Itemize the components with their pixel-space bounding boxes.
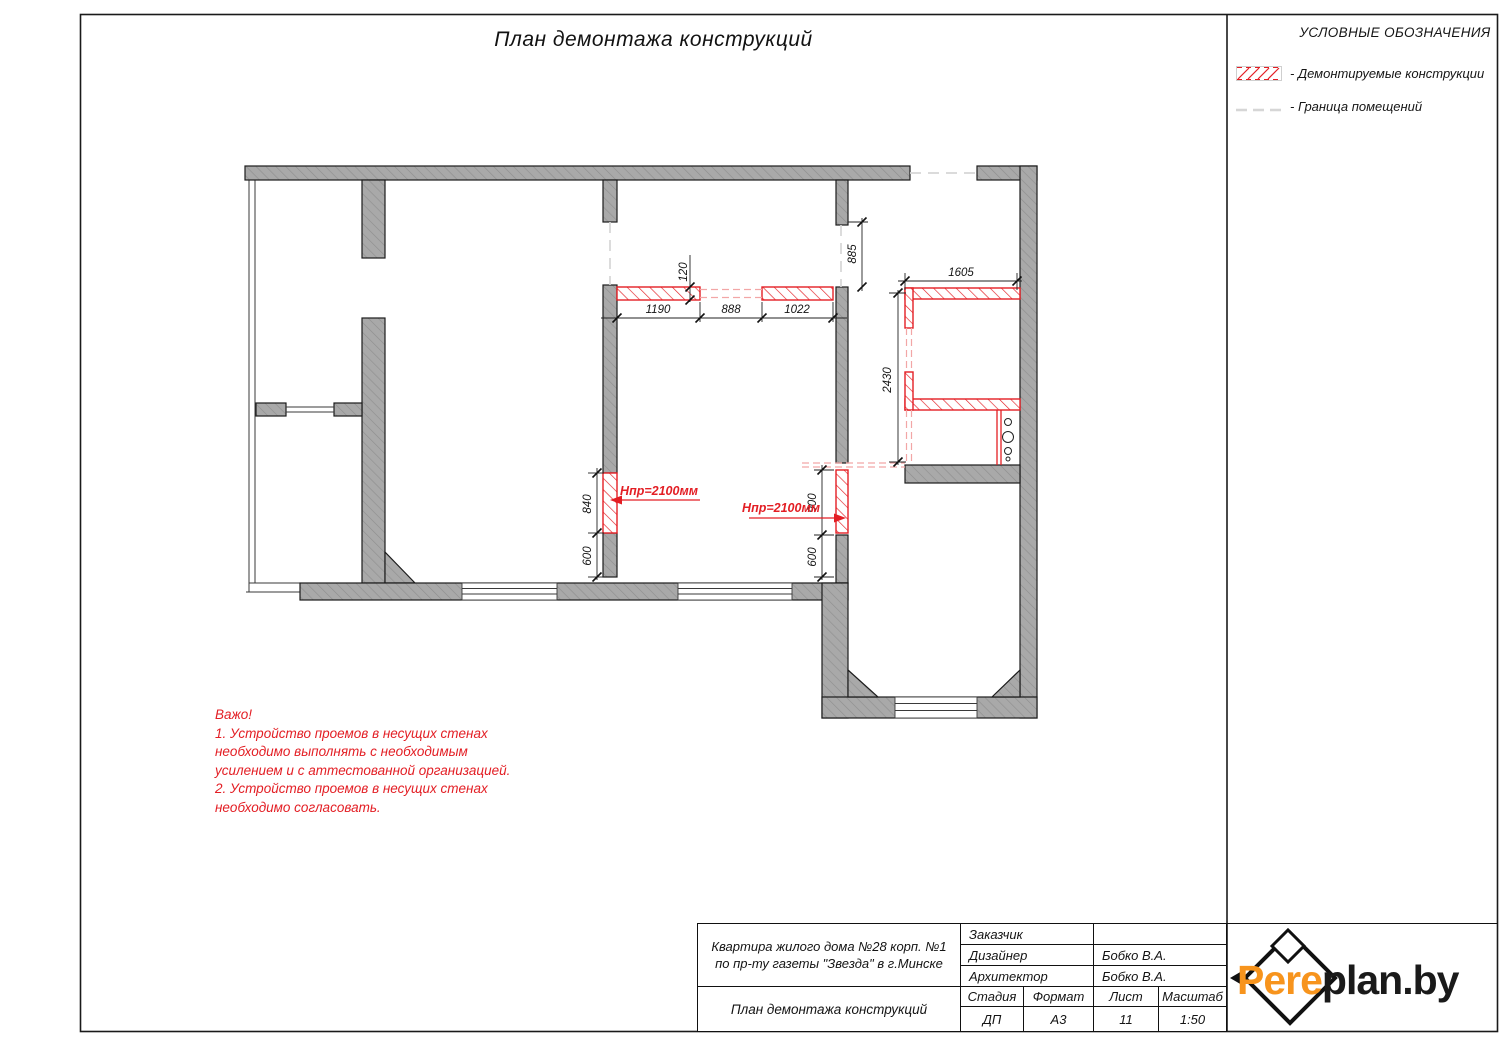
col-label-format: Формат bbox=[1024, 987, 1094, 1007]
legend-boundary-swatch bbox=[1236, 101, 1282, 119]
dim-seg1: 1190 bbox=[646, 304, 671, 316]
title-block: Квартира жилого дома №28 корп. №1 по пр-… bbox=[697, 923, 1227, 1032]
legend-header: УСЛОВНЫЕ ОБОЗНАЧЕНИЯ bbox=[1290, 25, 1500, 40]
opening-note-left: Нпр=2100мм bbox=[620, 484, 698, 498]
page-title: План демонтажа конструкций bbox=[80, 28, 1227, 52]
col-label-stage: Стадия bbox=[961, 987, 1024, 1007]
col-value-sheet: 11 bbox=[1094, 1007, 1159, 1031]
project-line1: Квартира жилого дома №28 корп. №1 bbox=[711, 938, 946, 955]
drawing-sheet: 1190 888 1022 120 885 1605 bbox=[0, 0, 1500, 1061]
note-line: усилением и с аттестованной организацией… bbox=[215, 762, 510, 781]
legend-boundary-label: - Граница помещений bbox=[1290, 99, 1422, 114]
vent-stack bbox=[1003, 419, 1014, 462]
company-logo: Pereplan.by bbox=[1227, 923, 1498, 1032]
pereplan-logo-icon: Pereplan.by bbox=[1227, 924, 1498, 1031]
legend-demolished-swatch bbox=[1236, 66, 1282, 86]
dim-kitchen-width: 1605 bbox=[948, 267, 974, 279]
role-value-designer: Бобко В.А. bbox=[1094, 945, 1226, 966]
note-line: 2. Устройство проемов в несущих стенах bbox=[215, 780, 510, 799]
col-label-scale: Масштаб bbox=[1159, 987, 1226, 1007]
dim-wall-thickness: 120 bbox=[678, 262, 690, 282]
dim-right-offset: 600 bbox=[807, 547, 819, 567]
dim-offset-885: 885 bbox=[847, 244, 859, 264]
logo-part2: plan.by bbox=[1322, 957, 1460, 1003]
dim-seg2: 888 bbox=[721, 304, 741, 316]
dim-seg3: 1022 bbox=[784, 304, 810, 316]
note-line: необходимо согласовать. bbox=[215, 799, 510, 818]
balcony-outline bbox=[246, 166, 362, 592]
note-line: Важо! bbox=[215, 706, 510, 725]
role-label-architect: Архитектор bbox=[961, 966, 1094, 987]
col-value-format: А3 bbox=[1024, 1007, 1094, 1031]
dim-kitchen-height: 2430 bbox=[882, 367, 894, 394]
walls bbox=[245, 166, 1037, 718]
note-line: необходимо выполнять с необходимым bbox=[215, 743, 510, 762]
legend-demolished-label: - Демонтируемые конструкции bbox=[1290, 66, 1484, 81]
col-value-scale: 1:50 bbox=[1159, 1007, 1226, 1031]
role-value-customer bbox=[1094, 924, 1226, 945]
floor-plan-drawing: 1190 888 1022 120 885 1605 bbox=[0, 0, 1500, 1061]
opening-notes: Нпр=2100мм Нпр=2100мм bbox=[610, 484, 846, 523]
project-line2: по пр-ту газеты "Звезда" в г.Минске bbox=[715, 955, 943, 972]
col-value-stage: ДП bbox=[961, 1007, 1024, 1031]
role-label-customer: Заказчик bbox=[961, 924, 1094, 945]
svg-text:Pereplan.by: Pereplan.by bbox=[1237, 957, 1460, 1003]
role-value-architect: Бобко В.А. bbox=[1094, 966, 1226, 987]
project-name-cell: Квартира жилого дома №28 корп. №1 по пр-… bbox=[698, 924, 961, 987]
opening-note-right: Нпр=2100мм bbox=[742, 501, 820, 515]
dim-left-opening: 840 bbox=[582, 494, 594, 514]
dim-left-offset: 600 bbox=[582, 546, 594, 566]
red-hatch-icon bbox=[1236, 66, 1282, 81]
room-boundary-dashes bbox=[610, 173, 977, 287]
col-label-sheet: Лист bbox=[1094, 987, 1159, 1007]
important-notes: Важо! 1. Устройство проемов в несущих ст… bbox=[215, 706, 510, 817]
logo-part1: Pere bbox=[1237, 957, 1322, 1003]
note-line: 1. Устройство проемов в несущих стенах bbox=[215, 725, 510, 744]
role-label-designer: Дизайнер bbox=[961, 945, 1094, 966]
dashed-line-icon bbox=[1236, 106, 1282, 114]
drawing-title-cell: План демонтажа конструкций bbox=[698, 987, 961, 1031]
